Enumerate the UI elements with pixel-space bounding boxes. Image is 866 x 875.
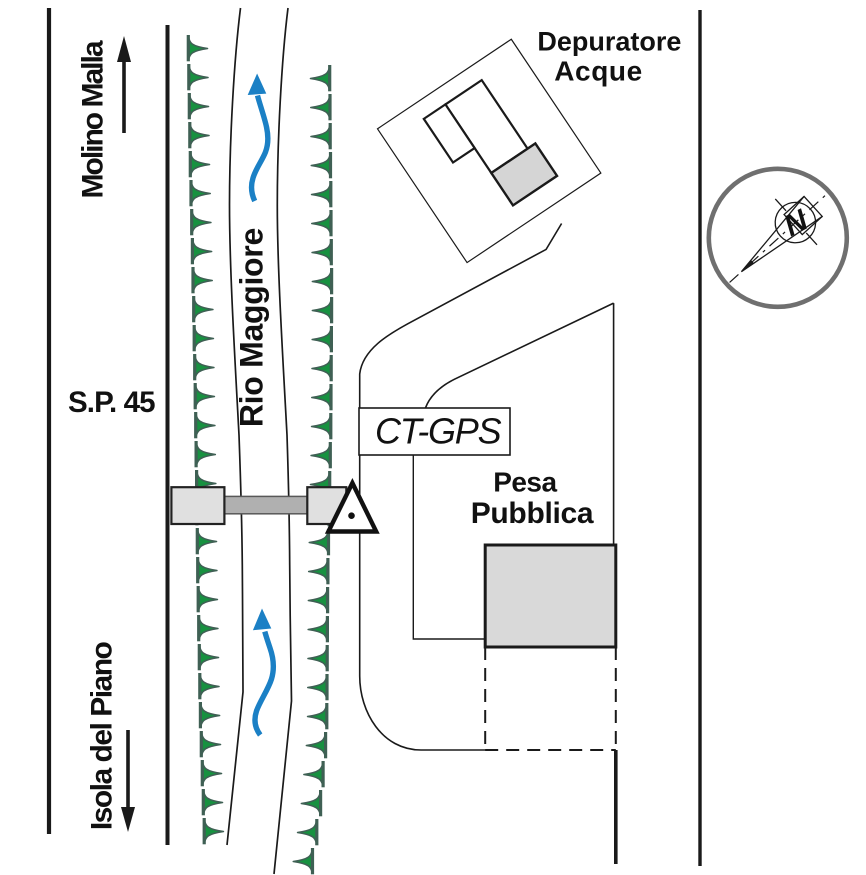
svg-text:Molino Malla: Molino Malla [76,40,109,198]
svg-text:Acque: Acque [554,55,643,86]
svg-text:Pesa: Pesa [493,466,557,497]
svg-text:CT-GPS: CT-GPS [375,411,502,452]
svg-text:S.P. 45: S.P. 45 [68,386,155,419]
svg-text:Rio Maggiore: Rio Maggiore [233,228,269,427]
svg-text:Isola del Piano: Isola del Piano [85,641,118,830]
svg-text:Depuratore: Depuratore [537,26,681,56]
svg-text:Pubblica: Pubblica [471,497,594,530]
